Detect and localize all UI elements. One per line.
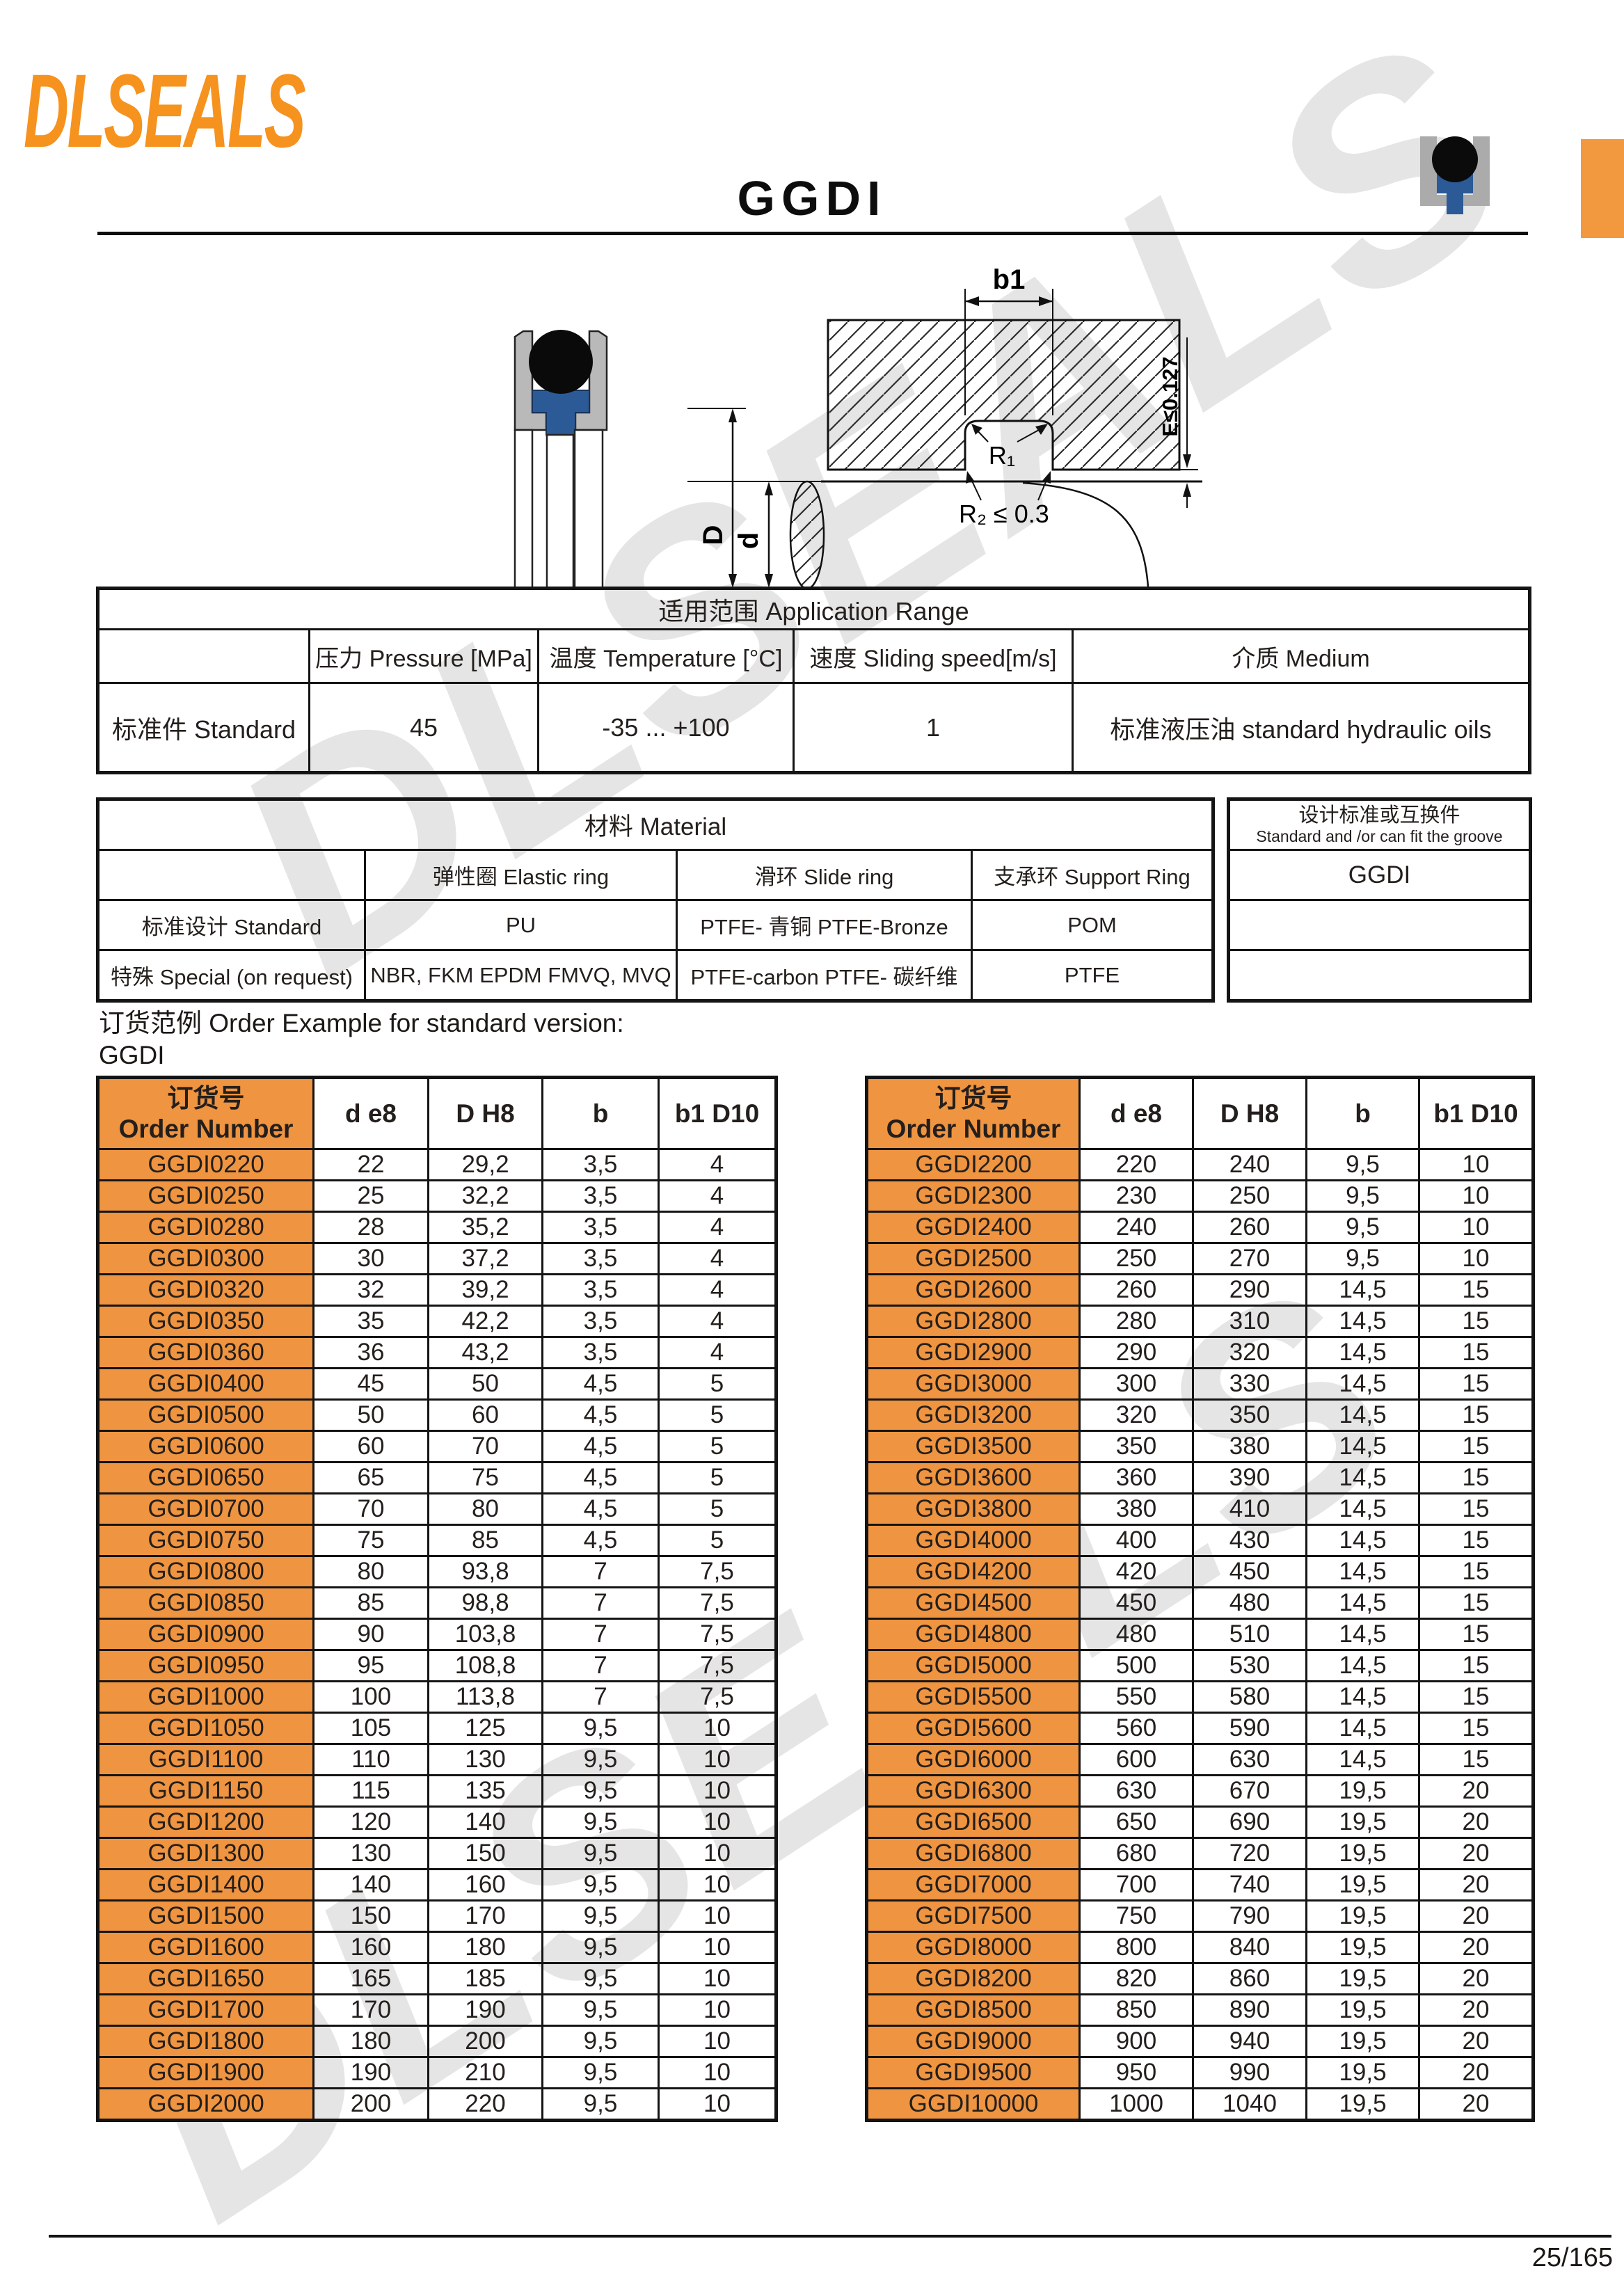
order-number-cell: GGDI7500	[868, 1901, 1080, 1932]
table-row: GGDI03503542,23,54	[99, 1306, 776, 1337]
elastic-special: NBR, FKM EPDM FMVQ, MVQ	[365, 950, 677, 1000]
order-number-cell: GGDI0500	[99, 1400, 314, 1431]
value-cell: 14,5	[1307, 1744, 1419, 1776]
value-cell: 7,5	[659, 1682, 776, 1713]
value-cell: 3,5	[543, 1275, 659, 1306]
value-cell: 20	[1419, 1776, 1533, 1807]
application-range-table: 适用范围 Application Range 压力 Pressure [MPa]…	[97, 588, 1530, 773]
col-slide-ring: 滑环 Slide ring	[677, 850, 972, 900]
row-label: 标准设计 Standard	[99, 900, 365, 950]
table-row: GGDI16001601809,510	[99, 1932, 776, 1963]
value-cell: 170	[314, 1995, 429, 2026]
footer-divider	[49, 2235, 1611, 2238]
support-special: PTFE	[972, 950, 1213, 1000]
dim-d-label: d	[733, 532, 764, 549]
value-cell: 20	[1419, 1932, 1533, 1963]
value-cell: 10	[659, 1744, 776, 1776]
value-cell: 750	[1080, 1901, 1193, 1932]
groove-standard-title: 设计标准或互换件 Standard and /or can fit the gr…	[1229, 800, 1530, 850]
value-cell: 9,5	[1307, 1243, 1419, 1275]
table-row: GGDI260026029014,515	[868, 1275, 1533, 1306]
order-number-cell: GGDI0360	[99, 1337, 314, 1369]
value-cell: 3,5	[543, 1306, 659, 1337]
value-cell: 14,5	[1307, 1369, 1419, 1400]
value-cell: 140	[314, 1870, 429, 1901]
order-number-cell: GGDI1150	[99, 1776, 314, 1807]
o-ring	[529, 330, 593, 394]
value-cell: 14,5	[1307, 1588, 1419, 1619]
table-row: GGDI03603643,23,54	[99, 1337, 776, 1369]
table-row: GGDI750075079019,520	[868, 1901, 1533, 1932]
value-cell: 14,5	[1307, 1525, 1419, 1556]
order-number-cell: GGDI9500	[868, 2057, 1080, 2089]
value-cell: 19,5	[1307, 1776, 1419, 1807]
value-cell: 840	[1193, 1932, 1307, 1963]
value-cell: 9,5	[1307, 1212, 1419, 1243]
table-row: GGDI03203239,23,54	[99, 1275, 776, 1306]
order-example: 订货范例 Order Example for standard version:…	[99, 1007, 624, 1071]
order-number-cell: GGDI0280	[99, 1212, 314, 1243]
value-cell: 4,5	[543, 1400, 659, 1431]
value-cell: 29,2	[429, 1149, 543, 1181]
seal-cross-section-diagram: D d b1 R₁	[431, 268, 1252, 595]
order-number-cell: GGDI2500	[868, 1243, 1080, 1275]
value-cell: 14,5	[1307, 1462, 1419, 1494]
value-cell: 125	[429, 1713, 543, 1744]
value-cell: 15	[1419, 1306, 1533, 1337]
value-cell: 950	[1080, 2057, 1193, 2089]
order-number-cell: GGDI3500	[868, 1431, 1080, 1462]
value-cell: 10	[659, 1963, 776, 1995]
col-b1-D10: b1 D10	[1419, 1078, 1533, 1149]
table-row: GGDI700070074019,520	[868, 1870, 1533, 1901]
value-cell: 20	[1419, 1870, 1533, 1901]
dim-e-label: E≤0.127	[1158, 356, 1182, 436]
speed-value: 1	[794, 683, 1073, 772]
order-number-cell: GGDI2300	[868, 1181, 1080, 1212]
value-cell: 820	[1080, 1963, 1193, 1995]
value-cell: 10	[659, 2026, 776, 2057]
value-cell: 103,8	[429, 1619, 543, 1650]
blank-cell	[99, 630, 310, 683]
value-cell: 3,5	[543, 1181, 659, 1212]
pressure-value: 45	[310, 683, 539, 772]
table-row: GGDI16501651859,510	[99, 1963, 776, 1995]
value-cell: 890	[1193, 1995, 1307, 2026]
value-cell: 14,5	[1307, 1337, 1419, 1369]
value-cell: 690	[1193, 1807, 1307, 1838]
value-cell: 7,5	[659, 1556, 776, 1588]
col-order-number: 订货号Order Number	[868, 1078, 1080, 1149]
value-cell: 14,5	[1307, 1682, 1419, 1713]
value-cell: 150	[314, 1901, 429, 1932]
order-number-cell: GGDI8500	[868, 1995, 1080, 2026]
order-number-cell: GGDI10000	[868, 2089, 1080, 2120]
table-row: GGDI360036039014,515	[868, 1462, 1533, 1494]
value-cell: 10	[1419, 1243, 1533, 1275]
value-cell: 15	[1419, 1713, 1533, 1744]
value-cell: 9,5	[543, 1776, 659, 1807]
value-cell: 150	[429, 1838, 543, 1870]
value-cell: 19,5	[1307, 1932, 1419, 1963]
slide-special: PTFE-carbon PTFE- 碳纤维	[677, 950, 972, 1000]
value-cell: 4	[659, 1149, 776, 1181]
table-row: GGDI300030033014,515	[868, 1369, 1533, 1400]
table-row: GGDI065065754,55	[99, 1462, 776, 1494]
value-cell: 410	[1193, 1494, 1307, 1525]
order-number-cell: GGDI0700	[99, 1494, 314, 1525]
value-cell: 113,8	[429, 1682, 543, 1713]
page-number: 25/165	[1532, 2243, 1613, 2273]
value-cell: 3,5	[543, 1337, 659, 1369]
value-cell: 185	[429, 1963, 543, 1995]
value-cell: 200	[429, 2026, 543, 2057]
value-cell: 10	[659, 1870, 776, 1901]
blank-cell	[1229, 950, 1530, 1000]
table-row: GGDI17001701909,510	[99, 1995, 776, 2026]
groove-title-en: Standard and /or can fit the groove	[1234, 827, 1525, 846]
value-cell: 3,5	[543, 1243, 659, 1275]
value-cell: 9,5	[543, 1963, 659, 1995]
value-cell: 4	[659, 1275, 776, 1306]
value-cell: 210	[429, 2057, 543, 2089]
table-row: GGDI100001000104019,520	[868, 2089, 1533, 2120]
table-row: GGDI03003037,23,54	[99, 1243, 776, 1275]
order-number-cell: GGDI0900	[99, 1619, 314, 1650]
order-number-cell: GGDI4500	[868, 1588, 1080, 1619]
material-title: 材料 Material	[99, 800, 1213, 850]
value-cell: 10	[659, 1807, 776, 1838]
value-cell: 39,2	[429, 1275, 543, 1306]
order-number-cell: GGDI1600	[99, 1932, 314, 1963]
col-b: b	[1307, 1078, 1419, 1149]
value-cell: 480	[1193, 1588, 1307, 1619]
value-cell: 680	[1080, 1838, 1193, 1870]
value-cell: 98,8	[429, 1588, 543, 1619]
value-cell: 160	[314, 1932, 429, 1963]
value-cell: 4	[659, 1337, 776, 1369]
value-cell: 480	[1080, 1619, 1193, 1650]
order-number-cell: GGDI9000	[868, 2026, 1080, 2057]
value-cell: 9,5	[543, 1807, 659, 1838]
value-cell: 19,5	[1307, 1807, 1419, 1838]
order-number-cell: GGDI2800	[868, 1306, 1080, 1337]
value-cell: 190	[429, 1995, 543, 2026]
value-cell: 15	[1419, 1525, 1533, 1556]
value-cell: 240	[1080, 1212, 1193, 1243]
value-cell: 9,5	[543, 1870, 659, 1901]
value-cell: 790	[1193, 1901, 1307, 1932]
order-number-cell: GGDI3600	[868, 1462, 1080, 1494]
value-cell: 130	[314, 1838, 429, 1870]
order-number-cell: GGDI1700	[99, 1995, 314, 2026]
value-cell: 170	[429, 1901, 543, 1932]
value-cell: 15	[1419, 1744, 1533, 1776]
value-cell: 20	[1419, 2089, 1533, 2120]
value-cell: 110	[314, 1744, 429, 1776]
value-cell: 25	[314, 1181, 429, 1212]
value-cell: 15	[1419, 1337, 1533, 1369]
material-table: 材料 Material 弹性圈 Elastic ring 滑环 Slide ri…	[97, 799, 1213, 1001]
table-row: GGDI900090094019,520	[868, 2026, 1533, 2057]
value-cell: 4	[659, 1212, 776, 1243]
value-cell: 9,5	[1307, 1181, 1419, 1212]
value-cell: 15	[1419, 1400, 1533, 1431]
table-row: GGDI600060063014,515	[868, 1744, 1533, 1776]
value-cell: 180	[429, 1932, 543, 1963]
order-number-cell: GGDI5600	[868, 1713, 1080, 1744]
table-row: GGDI060060704,55	[99, 1431, 776, 1462]
value-cell: 350	[1193, 1400, 1307, 1431]
table-row: GGDI950095099019,520	[868, 2057, 1533, 2089]
blank-cell	[99, 850, 365, 900]
value-cell: 500	[1080, 1650, 1193, 1682]
table-row: GGDI070070804,55	[99, 1494, 776, 1525]
value-cell: 37,2	[429, 1243, 543, 1275]
table-row: GGDI18001802009,510	[99, 2026, 776, 2057]
value-cell: 240	[1193, 1149, 1307, 1181]
value-cell: 14,5	[1307, 1494, 1419, 1525]
value-cell: 740	[1193, 1870, 1307, 1901]
value-cell: 9,5	[543, 2057, 659, 2089]
order-number-cell: GGDI1050	[99, 1713, 314, 1744]
col-elastic-ring: 弹性圈 Elastic ring	[365, 850, 677, 900]
medium-value: 标准液压油 standard hydraulic oils	[1073, 683, 1529, 772]
col-speed: 速度 Sliding speed[m/s]	[794, 630, 1073, 683]
blank-cell	[1229, 900, 1530, 950]
value-cell: 14,5	[1307, 1306, 1419, 1337]
value-cell: 35,2	[429, 1212, 543, 1243]
value-cell: 200	[314, 2089, 429, 2120]
order-number-cell: GGDI4800	[868, 1619, 1080, 1650]
value-cell: 220	[1080, 1149, 1193, 1181]
table-row: GGDI08008093,877,5	[99, 1556, 776, 1588]
value-cell: 290	[1193, 1275, 1307, 1306]
value-cell: 450	[1080, 1588, 1193, 1619]
value-cell: 250	[1193, 1181, 1307, 1212]
value-cell: 10	[1419, 1181, 1533, 1212]
groove-title-cn: 设计标准或互换件	[1234, 804, 1525, 827]
order-number-cell: GGDI7000	[868, 1870, 1080, 1901]
table-row: GGDI560056059014,515	[868, 1713, 1533, 1744]
value-cell: 5	[659, 1431, 776, 1462]
value-cell: 300	[1080, 1369, 1193, 1400]
value-cell: 10	[659, 1713, 776, 1744]
table-row: GGDI290029032014,515	[868, 1337, 1533, 1369]
value-cell: 14,5	[1307, 1556, 1419, 1588]
value-cell: 1000	[1080, 2089, 1193, 2120]
value-cell: 1040	[1193, 2089, 1307, 2120]
value-cell: 19,5	[1307, 1995, 1419, 2026]
value-cell: 105	[314, 1713, 429, 1744]
value-cell: 15	[1419, 1619, 1533, 1650]
value-cell: 100	[314, 1682, 429, 1713]
value-cell: 3,5	[543, 1212, 659, 1243]
order-number-cell: GGDI0650	[99, 1462, 314, 1494]
table-row: GGDI15001501709,510	[99, 1901, 776, 1932]
value-cell: 75	[314, 1525, 429, 1556]
value-cell: 15	[1419, 1650, 1533, 1682]
value-cell: 20	[1419, 2026, 1533, 2057]
value-cell: 32,2	[429, 1181, 543, 1212]
value-cell: 550	[1080, 1682, 1193, 1713]
value-cell: 190	[314, 2057, 429, 2089]
value-cell: 60	[429, 1400, 543, 1431]
order-number-cell: GGDI0250	[99, 1181, 314, 1212]
table-row: GGDI02802835,23,54	[99, 1212, 776, 1243]
value-cell: 5	[659, 1400, 776, 1431]
value-cell: 9,5	[543, 1901, 659, 1932]
col-D-H8: D H8	[1193, 1078, 1307, 1149]
value-cell: 95	[314, 1650, 429, 1682]
order-number-cell: GGDI4000	[868, 1525, 1080, 1556]
value-cell: 135	[429, 1776, 543, 1807]
table-row: GGDI08508598,877,5	[99, 1588, 776, 1619]
value-cell: 940	[1193, 2026, 1307, 2057]
value-cell: 115	[314, 1776, 429, 1807]
value-cell: 10	[1419, 1212, 1533, 1243]
value-cell: 560	[1080, 1713, 1193, 1744]
value-cell: 9,5	[543, 1995, 659, 2026]
table-row: GGDI420042045014,515	[868, 1556, 1533, 1588]
dim-r1-label: R₁	[989, 441, 1015, 470]
value-cell: 9,5	[543, 2089, 659, 2120]
groove-standard-value: GGDI	[1229, 850, 1530, 900]
value-cell: 230	[1080, 1181, 1193, 1212]
value-cell: 19,5	[1307, 1870, 1419, 1901]
value-cell: 850	[1080, 1995, 1193, 2026]
order-number-cell: GGDI8000	[868, 1932, 1080, 1963]
value-cell: 250	[1080, 1243, 1193, 1275]
value-cell: 670	[1193, 1776, 1307, 1807]
value-cell: 380	[1193, 1431, 1307, 1462]
value-cell: 35	[314, 1306, 429, 1337]
value-cell: 290	[1080, 1337, 1193, 1369]
page-title: GGDI	[0, 170, 1624, 226]
value-cell: 30	[314, 1243, 429, 1275]
value-cell: 7	[543, 1619, 659, 1650]
value-cell: 20	[1419, 1838, 1533, 1870]
order-number-cell: GGDI0350	[99, 1306, 314, 1337]
table-row: GGDI350035038014,515	[868, 1431, 1533, 1462]
value-cell: 320	[1080, 1400, 1193, 1431]
rod-section	[790, 481, 824, 589]
value-cell: 5	[659, 1369, 776, 1400]
value-cell: 19,5	[1307, 1838, 1419, 1870]
value-cell: 20	[1419, 2057, 1533, 2089]
value-cell: 4,5	[543, 1494, 659, 1525]
table-row: GGDI11001101309,510	[99, 1744, 776, 1776]
value-cell: 3,5	[543, 1149, 659, 1181]
order-number-cell: GGDI3200	[868, 1400, 1080, 1431]
value-cell: 14,5	[1307, 1275, 1419, 1306]
value-cell: 9,5	[543, 1838, 659, 1870]
order-number-cell: GGDI0400	[99, 1369, 314, 1400]
value-cell: 260	[1193, 1212, 1307, 1243]
value-cell: 14,5	[1307, 1619, 1419, 1650]
order-number-cell: GGDI1800	[99, 2026, 314, 2057]
value-cell: 19,5	[1307, 2089, 1419, 2120]
value-cell: 80	[429, 1494, 543, 1525]
value-cell: 65	[314, 1462, 429, 1494]
table-row: GGDI090090103,877,5	[99, 1619, 776, 1650]
table-row: GGDI24002402609,510	[868, 1212, 1533, 1243]
table-row: GGDI650065069019,520	[868, 1807, 1533, 1838]
value-cell: 15	[1419, 1431, 1533, 1462]
table-row: GGDI320032035014,515	[868, 1400, 1533, 1431]
value-cell: 400	[1080, 1525, 1193, 1556]
value-cell: 630	[1193, 1744, 1307, 1776]
support-standard: POM	[972, 900, 1213, 950]
col-temperature: 温度 Temperature [°C]	[539, 630, 794, 683]
value-cell: 430	[1193, 1525, 1307, 1556]
seal-icon	[1416, 134, 1494, 218]
table-row: GGDI095095108,877,5	[99, 1650, 776, 1682]
value-cell: 70	[314, 1494, 429, 1525]
value-cell: 270	[1193, 1243, 1307, 1275]
value-cell: 10	[659, 1776, 776, 1807]
value-cell: 15	[1419, 1588, 1533, 1619]
order-number-cell: GGDI0800	[99, 1556, 314, 1588]
col-D-H8: D H8	[429, 1078, 543, 1149]
value-cell: 93,8	[429, 1556, 543, 1588]
order-number-cell: GGDI0300	[99, 1243, 314, 1275]
value-cell: 15	[1419, 1369, 1533, 1400]
table-row: GGDI800080084019,520	[868, 1932, 1533, 1963]
order-number-cell: GGDI2400	[868, 1212, 1080, 1243]
table-row: GGDI1000100113,877,5	[99, 1682, 776, 1713]
col-d-e8: d e8	[1080, 1078, 1193, 1149]
value-cell: 320	[1193, 1337, 1307, 1369]
value-cell: 380	[1080, 1494, 1193, 1525]
value-cell: 70	[429, 1431, 543, 1462]
table-row: GGDI450045048014,515	[868, 1588, 1533, 1619]
table-row: GGDI500050053014,515	[868, 1650, 1533, 1682]
value-cell: 15	[1419, 1462, 1533, 1494]
value-cell: 50	[429, 1369, 543, 1400]
value-cell: 360	[1080, 1462, 1193, 1494]
value-cell: 390	[1193, 1462, 1307, 1494]
value-cell: 450	[1193, 1556, 1307, 1588]
table-row: GGDI280028031014,515	[868, 1306, 1533, 1337]
value-cell: 530	[1193, 1650, 1307, 1682]
value-cell: 330	[1193, 1369, 1307, 1400]
value-cell: 80	[314, 1556, 429, 1588]
value-cell: 7	[543, 1588, 659, 1619]
value-cell: 5	[659, 1494, 776, 1525]
value-cell: 590	[1193, 1713, 1307, 1744]
value-cell: 10	[659, 1995, 776, 2026]
value-cell: 800	[1080, 1932, 1193, 1963]
table-row: GGDI050050604,55	[99, 1400, 776, 1431]
col-order-number: 订货号Order Number	[99, 1078, 314, 1149]
value-cell: 5	[659, 1462, 776, 1494]
value-cell: 4,5	[543, 1525, 659, 1556]
value-cell: 260	[1080, 1275, 1193, 1306]
table-row: GGDI550055058014,515	[868, 1682, 1533, 1713]
value-cell: 9,5	[543, 1713, 659, 1744]
order-number-cell: GGDI1900	[99, 2057, 314, 2089]
value-cell: 580	[1193, 1682, 1307, 1713]
dim-b1-label: b1	[993, 268, 1026, 295]
order-number-cell: GGDI5500	[868, 1682, 1080, 1713]
orange-edge-tab	[1581, 139, 1624, 238]
value-cell: 600	[1080, 1744, 1193, 1776]
value-cell: 4,5	[543, 1431, 659, 1462]
col-medium: 介质 Medium	[1073, 630, 1529, 683]
table-row: GGDI02202229,23,54	[99, 1149, 776, 1181]
value-cell: 10	[659, 2057, 776, 2089]
